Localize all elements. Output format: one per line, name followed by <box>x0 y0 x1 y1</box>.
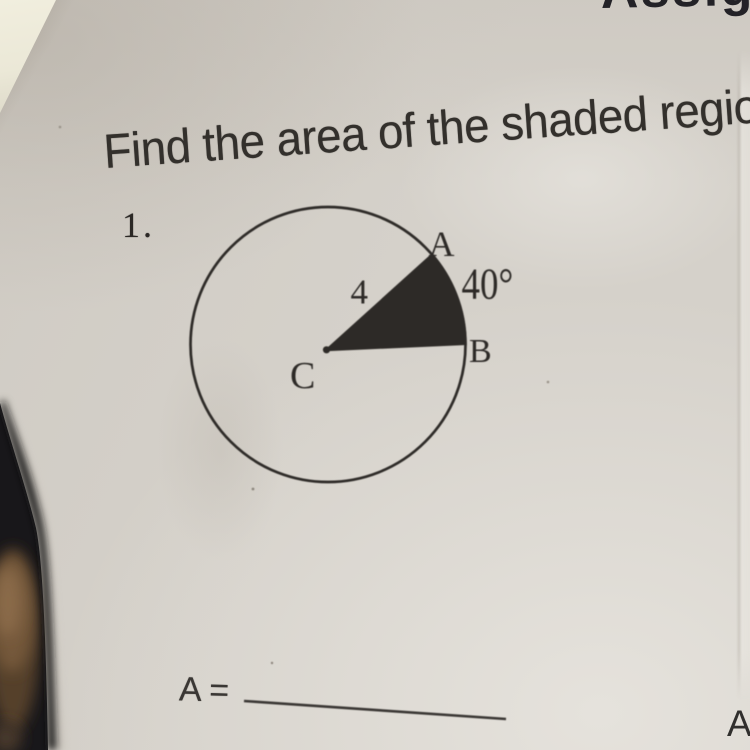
svg-text:C: C <box>290 355 315 397</box>
svg-text:40°: 40° <box>462 259 514 308</box>
svg-text:B: B <box>469 333 492 370</box>
svg-text:A: A <box>429 224 455 264</box>
svg-text:4: 4 <box>351 273 369 312</box>
